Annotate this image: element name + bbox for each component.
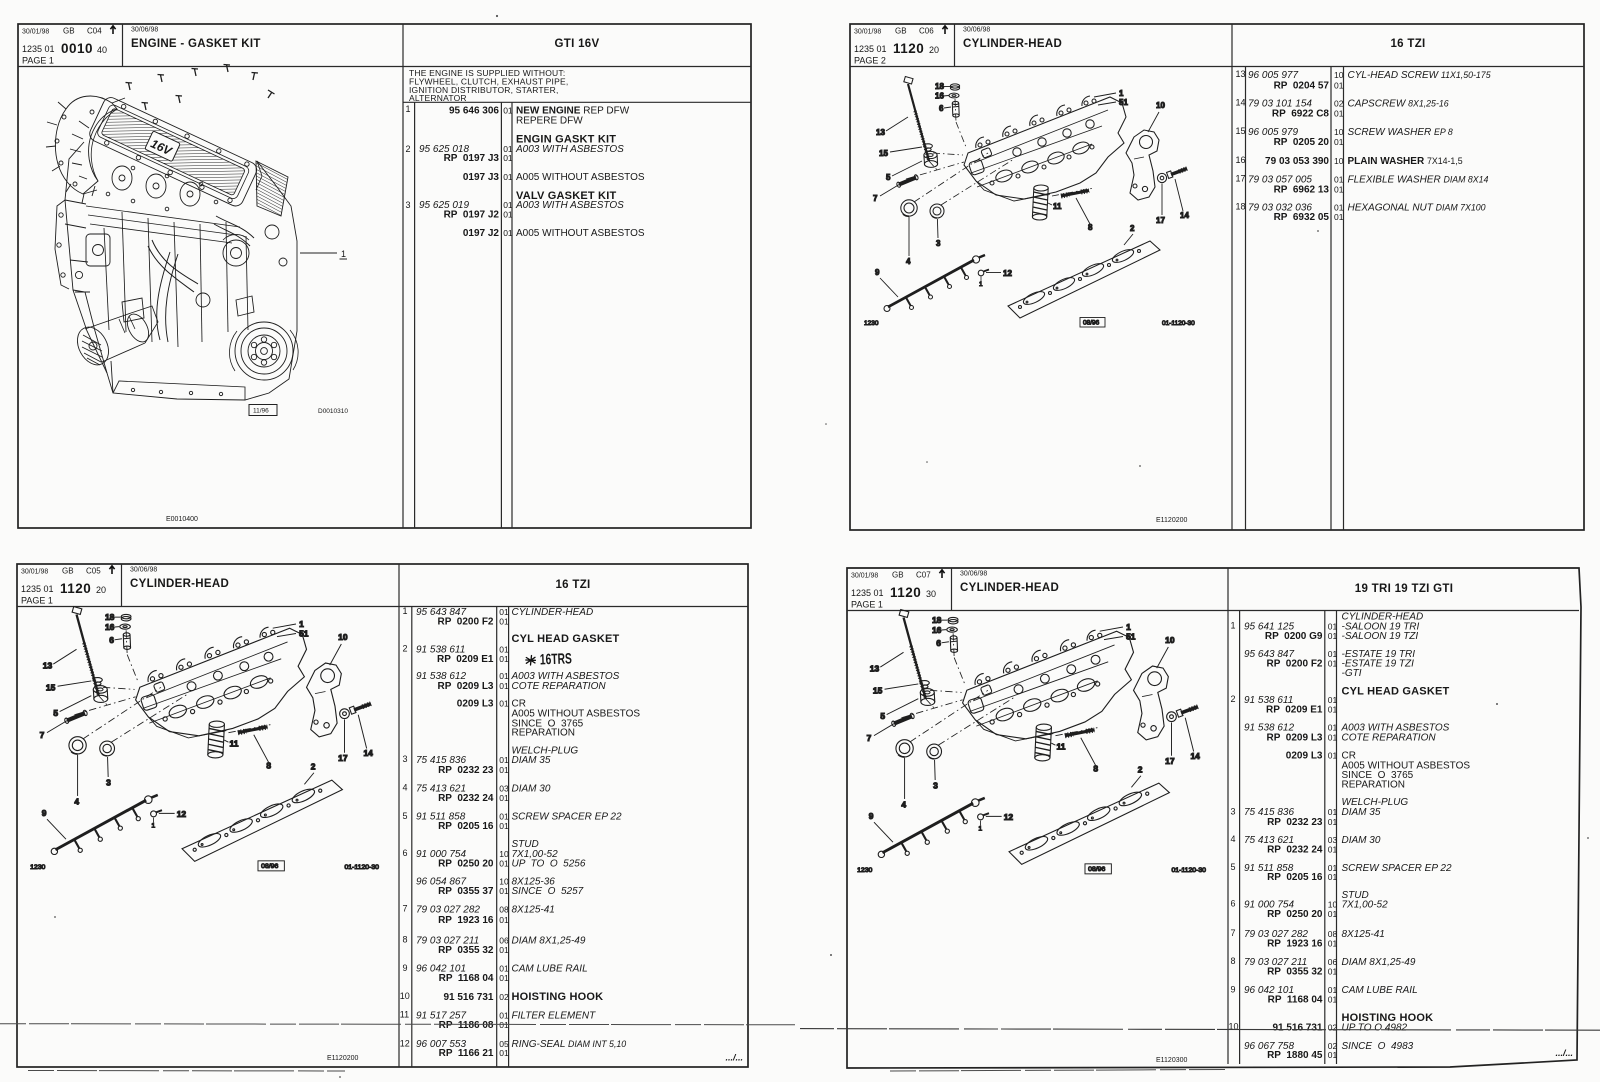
- svg-text:10: 10: [1328, 900, 1338, 910]
- svg-text:30: 30: [926, 589, 936, 599]
- svg-text:15: 15: [1236, 126, 1246, 136]
- svg-text:11/96: 11/96: [253, 408, 269, 415]
- svg-text:13: 13: [1236, 69, 1246, 79]
- svg-text:01: 01: [1328, 631, 1338, 641]
- svg-text:0197 J3: 0197 J3: [463, 172, 500, 183]
- svg-text:01: 01: [499, 812, 509, 822]
- svg-text:-SALOON 19 TZI: -SALOON 19 TZI: [1342, 631, 1419, 642]
- svg-text:CYLINDER-HEAD: CYLINDER-HEAD: [512, 607, 594, 618]
- svg-text:30/01/98: 30/01/98: [21, 569, 48, 576]
- svg-text:0010: 0010: [61, 41, 93, 56]
- svg-text:01: 01: [499, 1048, 509, 1058]
- svg-text:RP 0209 L3: RP 0209 L3: [438, 681, 494, 692]
- svg-text:01: 01: [1334, 137, 1344, 147]
- svg-text:91 516 731: 91 516 731: [1272, 1022, 1322, 1033]
- svg-text:30/06/98: 30/06/98: [963, 27, 990, 34]
- svg-text:1: 1: [406, 104, 411, 114]
- svg-text:3: 3: [406, 200, 411, 210]
- svg-text:COTE REPARATION: COTE REPARATION: [512, 681, 607, 692]
- svg-text:RP 1166 21: RP 1166 21: [439, 1048, 494, 1059]
- svg-text:FLEXIBLE WASHER DIAM 8X14: FLEXIBLE WASHER DIAM 8X14: [1348, 174, 1489, 185]
- svg-text:RP 0200 G9: RP 0200 G9: [1265, 631, 1323, 642]
- svg-text:01: 01: [1328, 659, 1338, 669]
- svg-text:UP TO O 5256: UP TO O 5256: [512, 858, 586, 869]
- svg-text:RP 0355 32: RP 0355 32: [438, 945, 494, 956]
- svg-text:01: 01: [499, 699, 509, 709]
- svg-text:RP 0205 20: RP 0205 20: [1274, 137, 1330, 148]
- svg-text:SCREW SPACER EP 22: SCREW SPACER EP 22: [1342, 863, 1452, 874]
- svg-text:4: 4: [403, 783, 408, 793]
- svg-text:1120: 1120: [60, 581, 91, 596]
- svg-text:8: 8: [1231, 956, 1236, 966]
- svg-text:01: 01: [1334, 174, 1344, 184]
- svg-text:06: 06: [1328, 957, 1338, 967]
- svg-text:01: 01: [499, 886, 509, 896]
- svg-text:01: 01: [1328, 750, 1338, 760]
- svg-text:PAGE 1: PAGE 1: [22, 56, 54, 66]
- svg-text:5: 5: [403, 811, 408, 821]
- svg-text:02: 02: [499, 992, 509, 1002]
- svg-text:RP 0232 23: RP 0232 23: [438, 765, 494, 776]
- svg-text:A003 WITH ASBESTOS: A003 WITH ASBESTOS: [515, 200, 624, 211]
- svg-text:1: 1: [403, 606, 408, 616]
- svg-text:01: 01: [503, 210, 513, 220]
- svg-text:30/01/98: 30/01/98: [22, 29, 49, 36]
- svg-text:RP 1880 45: RP 1880 45: [1267, 1050, 1323, 1061]
- svg-text:01: 01: [1328, 649, 1338, 659]
- svg-text:RP 0197 J2: RP 0197 J2: [444, 210, 500, 221]
- svg-text:01: 01: [1334, 109, 1344, 119]
- svg-text:01: 01: [499, 945, 509, 955]
- svg-text:RP 0200 F2: RP 0200 F2: [438, 617, 494, 628]
- svg-text:GB: GB: [63, 27, 75, 36]
- svg-text:01: 01: [499, 671, 509, 681]
- svg-text:CYL-HEAD SCREW 11X1,50-175: CYL-HEAD SCREW 11X1,50-175: [1348, 70, 1491, 81]
- svg-text:UP TO O 4982: UP TO O 4982: [1342, 1022, 1408, 1033]
- svg-text:CYLINDER-HEAD: CYLINDER-HEAD: [960, 582, 1059, 594]
- svg-text:16: 16: [1236, 155, 1246, 165]
- svg-text:1: 1: [1231, 621, 1236, 631]
- svg-text:06: 06: [499, 936, 509, 946]
- svg-text:8X125-41: 8X125-41: [1342, 929, 1385, 940]
- svg-text:01: 01: [503, 228, 513, 238]
- svg-text:RP 1168 04: RP 1168 04: [439, 973, 494, 984]
- svg-text:RP 0204 57: RP 0204 57: [1274, 80, 1330, 91]
- svg-text:SCREW SPACER EP 22: SCREW SPACER EP 22: [512, 812, 622, 823]
- svg-text:01: 01: [1328, 704, 1338, 714]
- svg-text:RP 0355 32: RP 0355 32: [1267, 967, 1323, 978]
- svg-text:01: 01: [499, 1011, 509, 1021]
- svg-text:RP 0209 E1: RP 0209 E1: [1266, 704, 1323, 715]
- svg-text:91 516 731: 91 516 731: [443, 992, 493, 1003]
- svg-text:1235 01: 1235 01: [854, 44, 887, 54]
- svg-text:GB: GB: [892, 571, 904, 580]
- svg-text:CYLINDER-HEAD: CYLINDER-HEAD: [963, 38, 1062, 50]
- svg-text:01: 01: [499, 858, 509, 868]
- svg-text:DIAM 35: DIAM 35: [512, 755, 551, 766]
- svg-text:01: 01: [499, 915, 509, 925]
- svg-text:RP 0209 E1: RP 0209 E1: [437, 654, 494, 665]
- svg-text:A005 WITHOUT ASBESTOS: A005 WITHOUT ASBESTOS: [516, 172, 645, 183]
- svg-text:7: 7: [1231, 928, 1236, 938]
- svg-text:01: 01: [1328, 1050, 1338, 1060]
- svg-text:SCREW WASHER EP 8: SCREW WASHER EP 8: [1348, 127, 1453, 138]
- svg-text:0209 L3: 0209 L3: [457, 699, 494, 710]
- svg-text:01: 01: [499, 973, 509, 983]
- svg-text:01: 01: [1328, 732, 1338, 742]
- svg-text:6: 6: [403, 848, 408, 858]
- svg-text:01: 01: [1334, 212, 1344, 222]
- svg-text:REPARATION: REPARATION: [512, 728, 576, 739]
- svg-text:20: 20: [929, 45, 939, 55]
- svg-text:10: 10: [1334, 127, 1344, 137]
- svg-text:9: 9: [403, 963, 408, 973]
- svg-text:19 TRI 19 TZI GTI: 19 TRI 19 TZI GTI: [1355, 583, 1453, 595]
- svg-text:1235 01: 1235 01: [851, 588, 884, 598]
- svg-text:RP 0209 L3: RP 0209 L3: [1267, 732, 1323, 743]
- svg-text:03: 03: [499, 783, 509, 793]
- svg-text:16 TZI: 16 TZI: [555, 579, 590, 591]
- svg-text:16TRS: 16TRS: [540, 650, 573, 668]
- svg-text:08: 08: [1328, 929, 1338, 939]
- svg-text:01: 01: [499, 681, 509, 691]
- svg-text:01: 01: [1328, 872, 1338, 882]
- svg-text:PAGE 1: PAGE 1: [851, 600, 883, 610]
- svg-text:79 03 027 282: 79 03 027 282: [416, 905, 480, 916]
- svg-text:.../...: .../...: [1555, 1048, 1573, 1058]
- svg-text:01: 01: [503, 172, 513, 182]
- svg-text:02: 02: [1334, 99, 1344, 109]
- svg-text:01: 01: [1328, 985, 1338, 995]
- svg-text:REPARATION: REPARATION: [1342, 780, 1406, 791]
- svg-text:A003 WITH ASBESTOS: A003 WITH ASBESTOS: [515, 144, 624, 155]
- svg-text:1120: 1120: [893, 41, 924, 56]
- svg-text:1235 01: 1235 01: [22, 44, 55, 54]
- svg-text:30/06/98: 30/06/98: [131, 27, 158, 34]
- svg-text:10: 10: [1334, 70, 1344, 80]
- svg-text:01: 01: [1328, 995, 1338, 1005]
- svg-text:8X125-41: 8X125-41: [512, 905, 555, 916]
- svg-text:RP 0250 20: RP 0250 20: [1267, 909, 1323, 920]
- svg-text:9: 9: [1231, 984, 1236, 994]
- svg-text:01: 01: [1328, 909, 1338, 919]
- svg-text:RP 1923 16: RP 1923 16: [1267, 939, 1323, 950]
- svg-text:FILTER ELEMENT: FILTER ELEMENT: [512, 1011, 597, 1022]
- svg-text:RP 0232 24: RP 0232 24: [438, 793, 494, 804]
- svg-text:01: 01: [499, 644, 509, 654]
- svg-text:ALTERNATOR: ALTERNATOR: [409, 93, 467, 103]
- svg-text:10: 10: [400, 991, 410, 1001]
- svg-text:1120: 1120: [890, 585, 921, 600]
- svg-text:RP 0205 16: RP 0205 16: [1267, 872, 1323, 883]
- svg-text:01: 01: [499, 617, 509, 627]
- svg-text:PAGE 1: PAGE 1: [21, 596, 53, 606]
- svg-text:CAM LUBE RAIL: CAM LUBE RAIL: [1342, 985, 1418, 996]
- svg-text:E1120200: E1120200: [1156, 517, 1188, 524]
- svg-text:DIAM 8X1,25-49: DIAM 8X1,25-49: [512, 936, 586, 947]
- svg-text:D0010310: D0010310: [318, 408, 348, 415]
- svg-text:RP 1168 04: RP 1168 04: [1268, 995, 1323, 1006]
- svg-text:8: 8: [403, 935, 408, 945]
- svg-text:RP 6922 C8: RP 6922 C8: [1272, 109, 1330, 120]
- svg-text:01: 01: [1328, 967, 1338, 977]
- svg-text:RP 1186 08: RP 1186 08: [439, 1020, 494, 1031]
- svg-text:DIAM 30: DIAM 30: [512, 783, 551, 794]
- svg-text:RP 0232 24: RP 0232 24: [1267, 844, 1323, 855]
- svg-text:30/01/98: 30/01/98: [854, 29, 881, 36]
- svg-text:DIAM 30: DIAM 30: [1342, 835, 1381, 846]
- svg-text:01: 01: [499, 755, 509, 765]
- svg-text:11: 11: [400, 1010, 409, 1020]
- svg-text:HOISTING HOOK: HOISTING HOOK: [512, 991, 604, 1003]
- svg-text:01: 01: [1328, 939, 1338, 949]
- svg-text:C04: C04: [87, 27, 102, 36]
- svg-text:95 646 306: 95 646 306: [449, 106, 499, 117]
- svg-text:18: 18: [1236, 202, 1246, 212]
- svg-text:SINCE O 4983: SINCE O 4983: [1342, 1041, 1414, 1052]
- svg-text:4: 4: [1231, 834, 1236, 844]
- svg-text:A005 WITHOUT ASBESTOS: A005 WITHOUT ASBESTOS: [516, 228, 645, 239]
- svg-text:01: 01: [499, 793, 509, 803]
- svg-text:CYL HEAD GASKET: CYL HEAD GASKET: [1342, 685, 1450, 697]
- svg-text:14: 14: [1236, 98, 1246, 108]
- svg-text:GB: GB: [62, 567, 74, 576]
- svg-text:C07: C07: [916, 571, 931, 580]
- svg-text:1: 1: [341, 249, 346, 259]
- svg-text:17: 17: [1236, 174, 1246, 184]
- svg-text:01: 01: [1328, 817, 1338, 827]
- svg-text:RP 0355 37: RP 0355 37: [438, 886, 494, 897]
- svg-text:01: 01: [1328, 621, 1338, 631]
- svg-text:01: 01: [499, 607, 509, 617]
- svg-text:01: 01: [1334, 80, 1344, 90]
- svg-text:01: 01: [503, 153, 513, 163]
- svg-text:01: 01: [499, 765, 509, 775]
- svg-text:RP 0205 16: RP 0205 16: [438, 821, 494, 832]
- svg-text:GB: GB: [895, 27, 907, 36]
- svg-text:7X1,00-52: 7X1,00-52: [1342, 900, 1389, 911]
- svg-text:CYLINDER-HEAD: CYLINDER-HEAD: [130, 578, 229, 590]
- svg-text:6: 6: [1231, 899, 1236, 909]
- svg-text:.../...: .../...: [725, 1053, 743, 1063]
- svg-text:CYL HEAD GASKET: CYL HEAD GASKET: [512, 633, 620, 645]
- svg-text:40: 40: [97, 45, 107, 55]
- svg-text:0209 L3: 0209 L3: [1286, 750, 1323, 761]
- svg-text:ENGINE - GASKET KIT: ENGINE - GASKET KIT: [131, 38, 261, 50]
- svg-text:C05: C05: [86, 567, 101, 576]
- svg-text:12: 12: [400, 1038, 410, 1048]
- svg-text:7: 7: [403, 904, 408, 914]
- svg-text:2: 2: [406, 144, 411, 154]
- svg-text:E1120200: E1120200: [327, 1055, 359, 1062]
- svg-text:01: 01: [499, 654, 509, 664]
- svg-text:DIAM 8X1,25-49: DIAM 8X1,25-49: [1342, 957, 1416, 968]
- svg-text:08: 08: [499, 905, 509, 915]
- svg-text:HEXAGONAL NUT DIAM 7X100: HEXAGONAL NUT DIAM 7X100: [1348, 202, 1486, 213]
- svg-text:RP 6932 05: RP 6932 05: [1274, 212, 1330, 223]
- svg-text:3: 3: [1231, 806, 1236, 816]
- svg-text:01: 01: [1334, 184, 1344, 194]
- svg-text:30/01/98: 30/01/98: [851, 573, 878, 580]
- svg-text:01: 01: [503, 106, 513, 116]
- svg-text:DIAM 35: DIAM 35: [1342, 807, 1381, 818]
- svg-text:PAGE 2: PAGE 2: [854, 56, 886, 66]
- svg-text:RP 0250 20: RP 0250 20: [438, 858, 494, 869]
- svg-text:2: 2: [1231, 694, 1236, 704]
- svg-text:01: 01: [1334, 202, 1344, 212]
- svg-text:RP 0200 F2: RP 0200 F2: [1267, 659, 1323, 670]
- svg-text:1235 01: 1235 01: [21, 584, 54, 594]
- svg-text:PLAIN WASHER 7X14-1,5: PLAIN WASHER 7X14-1,5: [1348, 156, 1463, 167]
- svg-text:3: 3: [403, 754, 408, 764]
- svg-text:COTE REPARATION: COTE REPARATION: [1342, 732, 1437, 743]
- svg-text:CAPSCREW 8X1,25-16: CAPSCREW 8X1,25-16: [1348, 99, 1449, 110]
- svg-text:30/06/98: 30/06/98: [960, 571, 987, 578]
- svg-text:01: 01: [1328, 844, 1338, 854]
- svg-text:01: 01: [1328, 723, 1338, 733]
- svg-text:10: 10: [1334, 156, 1344, 166]
- svg-text:2: 2: [403, 644, 408, 654]
- svg-text:5: 5: [1231, 862, 1236, 872]
- svg-text:E0010400: E0010400: [166, 516, 198, 523]
- svg-text:20: 20: [96, 585, 106, 595]
- svg-text:02: 02: [1328, 1022, 1338, 1032]
- svg-text:C06: C06: [919, 27, 934, 36]
- svg-text:CAM LUBE RAIL: CAM LUBE RAIL: [512, 964, 588, 975]
- svg-text:RP 6962 13: RP 6962 13: [1274, 184, 1330, 195]
- svg-text:79 03 053 390: 79 03 053 390: [1265, 156, 1329, 167]
- svg-text:RP 1923 16: RP 1923 16: [438, 915, 494, 926]
- svg-text:RP 0197 J3: RP 0197 J3: [444, 153, 500, 164]
- svg-text:01: 01: [499, 821, 509, 831]
- svg-text:REPERE DFW: REPERE DFW: [516, 116, 583, 127]
- svg-text:30/06/98: 30/06/98: [130, 567, 157, 574]
- svg-text:RING-SEAL DIAM INT 5,10: RING-SEAL DIAM INT 5,10: [512, 1039, 627, 1050]
- svg-text:GTI 16V: GTI 16V: [555, 38, 600, 50]
- svg-text:16 TZI: 16 TZI: [1390, 38, 1425, 50]
- svg-text:RP 0232 23: RP 0232 23: [1267, 817, 1323, 828]
- svg-text:0197 J2: 0197 J2: [463, 228, 500, 239]
- svg-text:E1120300: E1120300: [1156, 1057, 1188, 1064]
- svg-text:SINCE O 5257: SINCE O 5257: [512, 886, 584, 897]
- svg-text:01: 01: [499, 1020, 509, 1030]
- svg-text:-GTI: -GTI: [1342, 668, 1362, 679]
- svg-text:01: 01: [1328, 807, 1338, 817]
